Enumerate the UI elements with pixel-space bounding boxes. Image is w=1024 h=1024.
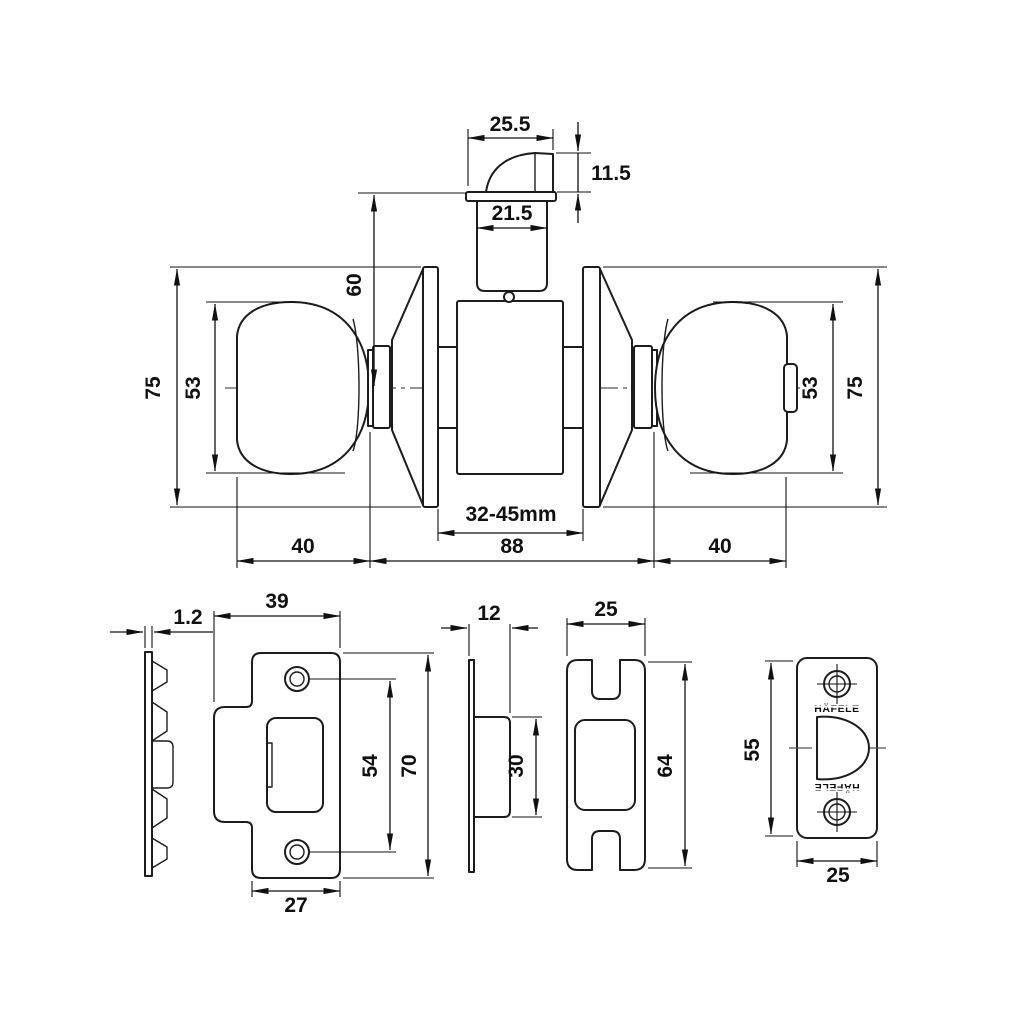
dim-latch-width: 25	[594, 598, 618, 621]
strike-side-bump	[152, 702, 167, 741]
right-shaft	[563, 347, 583, 428]
dim-rose-dia-right: 75	[844, 376, 867, 400]
left-knob	[237, 302, 369, 474]
lockset-technical-drawing: 25.5 11.5 21.5 60 75 53 53 75	[0, 0, 1024, 1024]
screw-hole-icon	[285, 840, 309, 864]
key-cylinder-face	[784, 364, 797, 412]
dim-rose-dia-left: 75	[142, 376, 165, 400]
technical-drawing-page: 25.5 11.5 21.5 60 75 53 53 75	[0, 0, 1024, 1024]
knob-assembly-view: 25.5 11.5 21.5 60 75 53 53 75	[142, 113, 887, 568]
dim-cylinder-to-center: 60	[343, 273, 366, 296]
dim-knob-dia-left: 53	[182, 376, 205, 399]
strike-side-bump	[152, 789, 167, 828]
dim-plate-thickness: 1.2	[173, 606, 202, 629]
dim-door-thickness-range: 32-45mm	[465, 503, 556, 526]
strike-latch-hole	[267, 718, 323, 812]
latch-cover-hole	[575, 720, 635, 810]
left-shaft	[438, 347, 457, 428]
strike-plate-front-view: 39 54 70 27	[214, 590, 434, 917]
dim-case-height: 30	[505, 754, 528, 777]
dim-latch-height: 64	[654, 754, 677, 778]
left-rose-cone	[392, 269, 423, 505]
dim-proj-right: 40	[708, 535, 731, 558]
brand-logo-text-inverted: HÄFELE	[814, 781, 860, 794]
dim-face-width: 25	[826, 864, 850, 887]
strike-side-plate	[145, 652, 152, 876]
dim-hole-span: 54	[359, 754, 382, 778]
right-knob	[655, 302, 787, 474]
latch-front-view: 25 64	[567, 598, 692, 870]
dim-strike-height: 70	[398, 754, 421, 777]
dim-strike-lower-width: 27	[284, 894, 307, 917]
turn-button-collar	[466, 192, 556, 201]
strike-side-bump	[152, 661, 167, 691]
brand-logo-text: HÄFELE	[814, 702, 860, 715]
spindle-peg	[504, 292, 514, 302]
dim-body-width: 88	[500, 535, 524, 558]
dim-knob-dia-right: 53	[799, 376, 822, 399]
dim-turn-button-width: 25.5	[490, 113, 531, 136]
dim-proj-left: 40	[291, 535, 314, 558]
strike-side-box	[152, 741, 173, 788]
dim-face-height: 55	[741, 738, 764, 762]
left-collar	[373, 346, 390, 428]
right-rose-cone	[600, 269, 632, 505]
dim-strike-width: 39	[265, 590, 288, 613]
right-rose-flange	[583, 267, 600, 507]
turn-button	[486, 153, 553, 192]
latch-faceplate-view: HÄFELE HÄFELE 55 25	[741, 658, 888, 887]
screw-hole-icon	[285, 667, 309, 691]
dim-turn-button-height: 11.5	[591, 162, 631, 185]
dim-latch-depth: 12	[477, 602, 500, 625]
lock-chassis	[457, 301, 563, 474]
left-rose-flange	[423, 267, 438, 507]
latch-side-view: 12 30	[441, 602, 542, 872]
strike-side-bump	[152, 838, 167, 868]
strike-plate-side-view: 1.2	[110, 606, 213, 876]
dim-cylinder-width: 21.5	[492, 202, 533, 225]
right-collar	[634, 346, 652, 428]
